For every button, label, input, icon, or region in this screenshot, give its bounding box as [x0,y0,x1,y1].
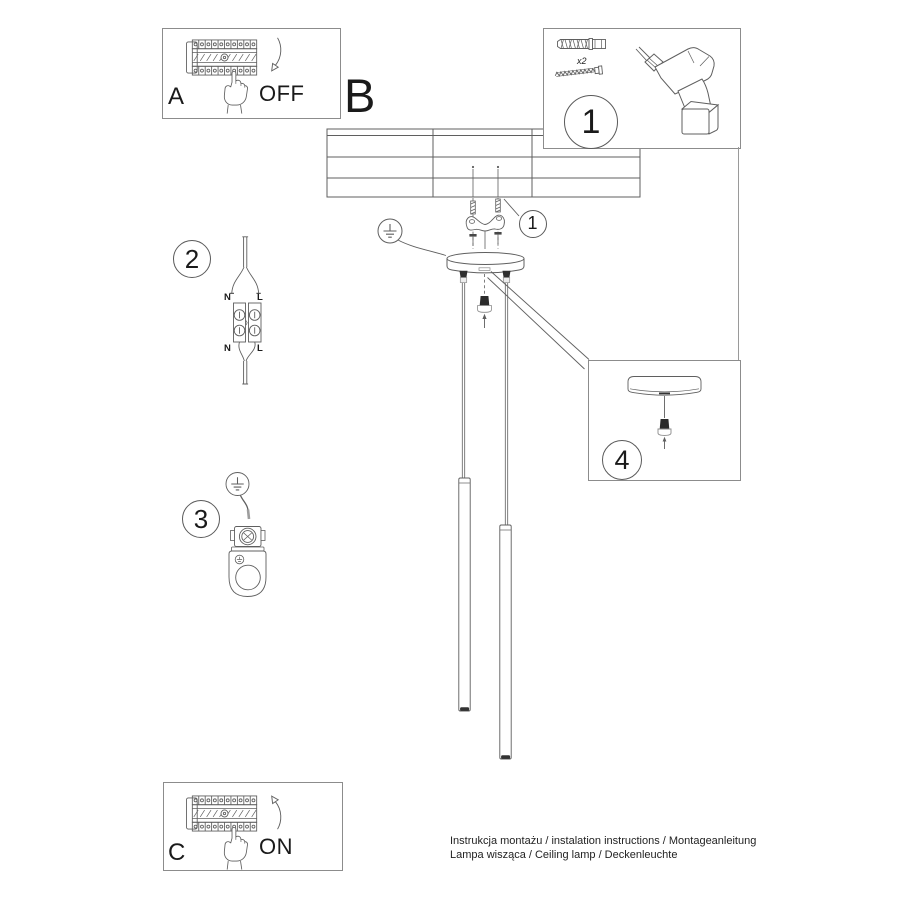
step-c-power-on-box: ON C [163,782,343,871]
wire-n-label-bottom: N [224,343,231,354]
cord-grip-cap [660,419,670,429]
off-label: OFF [259,81,305,107]
step-1-number-text: 1 [582,103,601,142]
step-2-number-text: 2 [185,244,199,275]
pendant-tube-right [500,525,511,759]
cable-gland-right [503,271,511,278]
pointing-hand-icon [218,69,252,114]
arrow-down-icon [264,34,286,78]
cord-grip-main [478,274,492,328]
step-4-number-text: 4 [614,445,629,476]
ground-symbol-canopy [378,219,446,256]
wiring-diagram [230,237,261,384]
callout-1-leader [504,199,519,216]
wall-anchor-icon [556,37,608,51]
wire-l-label-bottom: L [257,343,263,354]
screw-icon [553,64,611,80]
step-4-number: 4 [602,440,642,480]
callout-1-text: 1 [527,213,537,234]
footer-line-1: Instrukcja montażu / instalation instruc… [450,835,756,849]
step-4-detail-box: 4 [588,360,741,481]
wire-n-label-top: N [224,292,231,303]
callout-1: 1 [519,210,547,238]
footer-line-2: Lampa wisząca / Ceiling lamp / Deckenleu… [450,849,756,863]
panel-c-label: C [168,839,185,867]
drill-icon [630,45,722,137]
step-3-number-text: 3 [194,504,208,535]
lamp-assembly-artwork [0,0,900,900]
push-up-arrow [663,437,667,442]
pendant-tube-left [459,478,470,711]
step-3-number: 3 [182,500,220,538]
panel-b-label: B [344,72,375,119]
footer-text: Instrukcja montażu / instalation instruc… [450,835,756,862]
pointing-hand-icon [218,825,252,870]
ceiling-canopy [447,253,524,283]
instruction-sheet: OFF A x2 1 [0,0,900,900]
box-connector-line [738,147,739,360]
step-a-power-off-box: OFF A [162,28,341,119]
push-up-arrow [482,314,486,319]
step-2-number: 2 [173,240,211,278]
ground-terminal-assembly [226,473,266,597]
step-1-number: 1 [564,95,618,149]
mounting-screws-and-bracket [466,198,519,249]
wire-l-label-top: L [257,292,263,303]
panel-a-label: A [168,83,184,111]
canopy-center-hole [479,268,490,271]
step-1-parts-box: x2 1 [543,28,741,149]
cable-gland-left [460,271,468,278]
on-label: ON [259,834,293,860]
arrow-up-icon [264,789,286,833]
detail-leader-lines [488,272,590,370]
